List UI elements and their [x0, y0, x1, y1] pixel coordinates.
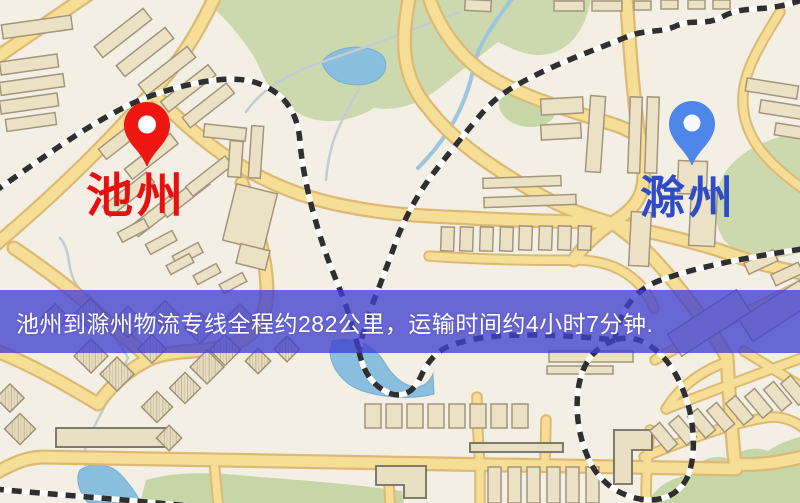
- pin-hole: [684, 115, 701, 132]
- map-canvas[interactable]: [0, 0, 800, 503]
- route-info-banner: 池州到滁州物流专线全程约282公里，运输时间约4小时7分钟.: [0, 290, 800, 353]
- logistics-route-map-screen: 池州 滁州 池州到滁州物流专线全程约282公里，运输时间约4小时7分钟.: [0, 0, 800, 503]
- origin-map-pin-icon[interactable]: [123, 101, 171, 169]
- destination-city-label: 滁州: [640, 176, 736, 221]
- pin-body: [124, 102, 170, 166]
- destination-map-pin-icon[interactable]: [668, 100, 716, 168]
- pin-hole: [138, 116, 156, 134]
- route-info-text: 池州到滁州物流专线全程约282公里，运输时间约4小时7分钟.: [16, 305, 653, 339]
- pin-body: [669, 101, 715, 165]
- origin-city-label: 池州: [86, 174, 186, 221]
